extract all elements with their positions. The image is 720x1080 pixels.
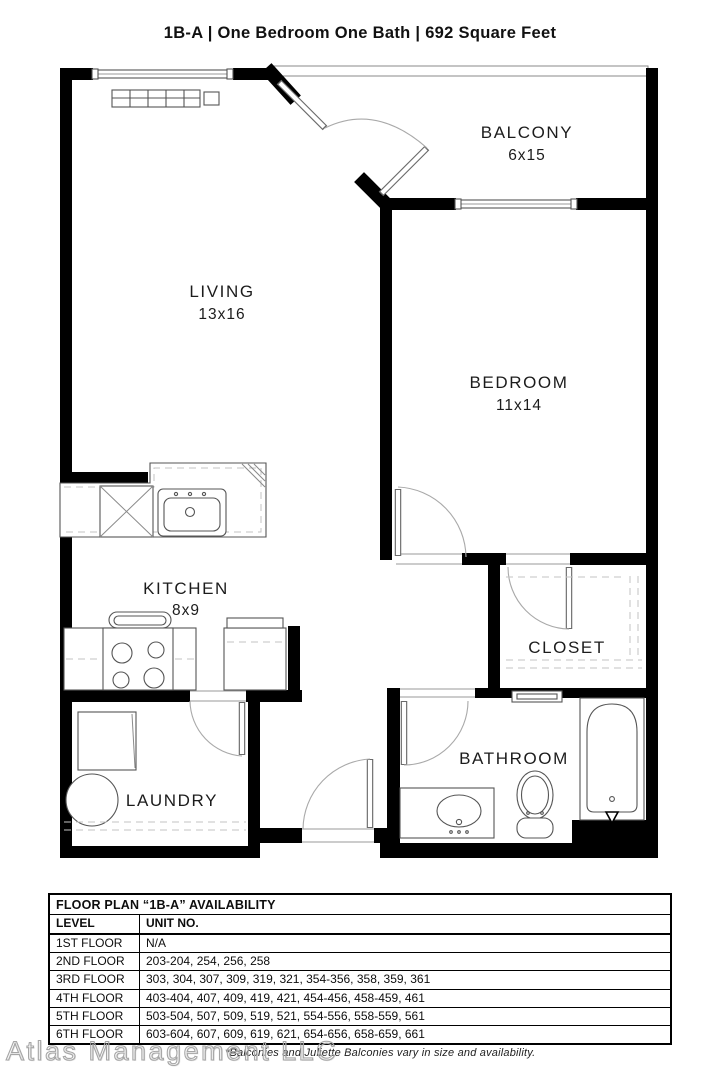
column-header-unit-no: UNIT NO. — [140, 915, 670, 933]
entry-door — [303, 759, 370, 829]
room-label-kitchen: KITCHEN — [143, 579, 229, 598]
table-row: 4TH FLOOR 403-404, 407, 409, 419, 421, 4… — [50, 989, 670, 1007]
table-row: 1ST FLOOR N/A — [50, 934, 670, 952]
availability-table-title: FLOOR PLAN “1B-A” AVAILABILITY — [50, 895, 670, 915]
vanity-sink — [400, 788, 494, 838]
units-cell: N/A — [140, 935, 670, 952]
balcony-railing — [270, 66, 648, 76]
units-cell: 503-504, 507, 509, 519, 521, 554-556, 55… — [140, 1008, 670, 1025]
kitchen-sink — [158, 489, 226, 536]
room-label-closet: CLOSET — [528, 638, 606, 657]
medicine-niche — [512, 691, 562, 702]
units-cell: 403-404, 407, 409, 419, 421, 454-456, 45… — [140, 990, 670, 1007]
level-cell: 4TH FLOOR — [50, 990, 140, 1007]
bedroom-door — [398, 487, 466, 557]
table-row: 2ND FLOOR 203-204, 254, 256, 258 — [50, 952, 670, 970]
closet-door — [508, 567, 569, 629]
room-dims-living: 13x16 — [198, 306, 245, 323]
level-cell: 5TH FLOOR — [50, 1008, 140, 1025]
watermark: Atlas Management LLC — [6, 1036, 338, 1067]
column-header-level: LEVEL — [50, 915, 140, 933]
refrigerator — [224, 618, 286, 690]
level-cell: 1ST FLOOR — [50, 935, 140, 952]
room-dims-bedroom: 11x14 — [496, 397, 542, 414]
units-cell: 303, 304, 307, 309, 319, 321, 354-356, 3… — [140, 971, 670, 988]
table-header-row: LEVEL UNIT NO. — [50, 915, 670, 934]
bathtub — [580, 698, 644, 823]
laundry-door — [190, 701, 242, 756]
room-label-bedroom: BEDROOM — [469, 373, 568, 392]
room-label-living: LIVING — [189, 282, 254, 301]
units-cell: 203-204, 254, 256, 258 — [140, 953, 670, 970]
toilet — [517, 771, 553, 838]
floor-plan-sheet: 1B-A | One Bedroom One Bath | 692 Square… — [0, 0, 720, 1080]
bedroom-window — [455, 198, 577, 210]
table-row: 3RD FLOOR 303, 304, 307, 309, 319, 321, … — [50, 970, 670, 988]
level-cell: 3RD FLOOR — [50, 971, 140, 988]
water-heater — [66, 774, 118, 826]
balcony-french-doors — [279, 82, 427, 194]
table-row: 5TH FLOOR 503-504, 507, 509, 519, 521, 5… — [50, 1007, 670, 1025]
room-label-bathroom: BATHROOM — [459, 749, 569, 768]
room-label-balcony: BALCONY — [481, 123, 573, 142]
room-label-laundry: LAUNDRY — [126, 791, 218, 810]
dishwasher — [100, 486, 153, 537]
availability-table: FLOOR PLAN “1B-A” AVAILABILITY LEVEL UNI… — [48, 893, 672, 1045]
washer — [78, 712, 136, 770]
baseboard-heater — [112, 90, 219, 107]
stove — [64, 612, 196, 690]
room-dims-kitchen: 8x9 — [172, 602, 200, 619]
level-cell: 2ND FLOOR — [50, 953, 140, 970]
living-window — [92, 68, 233, 80]
room-dims-balcony: 6x15 — [508, 147, 546, 164]
